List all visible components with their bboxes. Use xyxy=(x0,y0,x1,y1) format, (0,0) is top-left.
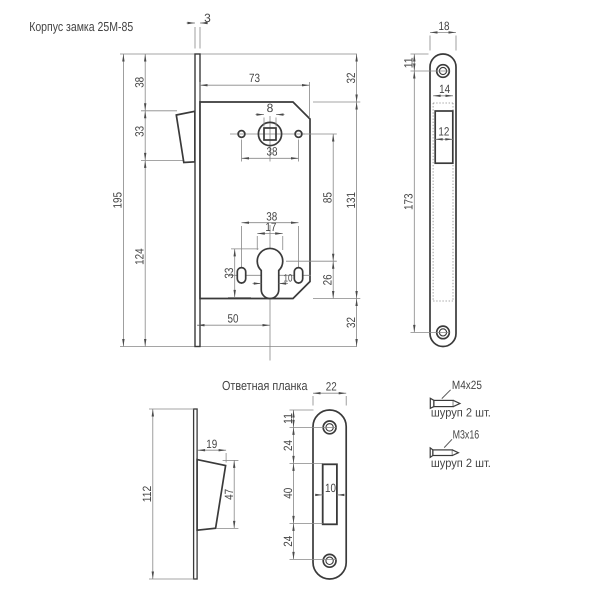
svg-text:10: 10 xyxy=(325,481,336,495)
svg-text:11: 11 xyxy=(281,413,295,424)
svg-text:17: 17 xyxy=(265,220,276,234)
svg-text:19: 19 xyxy=(206,437,217,451)
svg-text:М4х25: М4х25 xyxy=(452,378,482,392)
svg-text:18: 18 xyxy=(439,19,450,33)
svg-text:8: 8 xyxy=(267,101,274,115)
svg-text:173: 173 xyxy=(402,193,416,210)
svg-text:38: 38 xyxy=(132,77,146,88)
svg-text:47: 47 xyxy=(222,489,236,500)
svg-text:32: 32 xyxy=(344,72,358,83)
svg-text:24: 24 xyxy=(281,440,295,451)
svg-text:Корпус замка 25М-85: Корпус замка 25М-85 xyxy=(29,19,133,34)
svg-text:12: 12 xyxy=(438,125,449,139)
svg-text:124: 124 xyxy=(132,248,146,265)
svg-text:32: 32 xyxy=(344,317,358,328)
svg-text:112: 112 xyxy=(140,485,154,502)
svg-text:22: 22 xyxy=(326,380,337,394)
svg-text:33: 33 xyxy=(132,126,146,137)
svg-text:26: 26 xyxy=(321,274,335,285)
svg-text:14: 14 xyxy=(439,82,450,96)
svg-text:М3х16: М3х16 xyxy=(453,427,480,441)
svg-text:Ответная планка: Ответная планка xyxy=(222,378,308,393)
svg-text:шуруп 2 шт.: шуруп 2 шт. xyxy=(431,456,491,470)
svg-text:195: 195 xyxy=(110,192,124,209)
svg-text:40: 40 xyxy=(281,488,295,499)
svg-text:11: 11 xyxy=(402,57,416,68)
svg-text:131: 131 xyxy=(344,192,358,209)
svg-text:85: 85 xyxy=(321,192,335,203)
svg-text:73: 73 xyxy=(249,71,260,85)
svg-text:38: 38 xyxy=(267,145,278,159)
svg-text:10: 10 xyxy=(284,272,293,284)
svg-text:шуруп 2 шт.: шуруп 2 шт. xyxy=(431,406,491,420)
svg-text:33: 33 xyxy=(222,267,236,278)
svg-text:50: 50 xyxy=(228,311,239,325)
svg-text:24: 24 xyxy=(281,536,295,547)
svg-text:3: 3 xyxy=(204,11,211,25)
